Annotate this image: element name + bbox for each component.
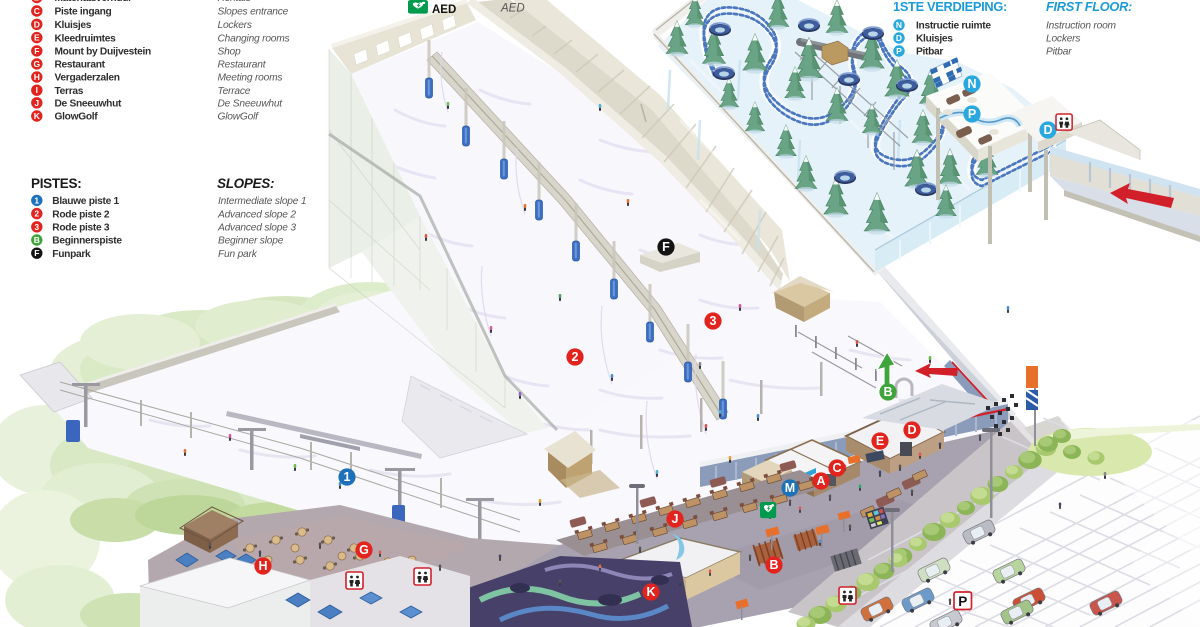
svg-text:Advanced slope 2: Advanced slope 2	[217, 209, 296, 220]
svg-text:Kluisjes: Kluisjes	[916, 34, 953, 45]
svg-text:Advanced slope 3: Advanced slope 3	[217, 223, 296, 234]
svg-text:Rode piste 2: Rode piste 2	[52, 209, 110, 220]
svg-text:Lockers: Lockers	[1046, 34, 1080, 45]
svg-text:E: E	[876, 434, 884, 448]
svg-text:1: 1	[344, 470, 351, 484]
svg-text:I: I	[36, 85, 38, 95]
svg-text:3: 3	[710, 314, 717, 328]
svg-text:Restaurant: Restaurant	[218, 60, 267, 71]
svg-text:P: P	[896, 46, 902, 56]
svg-text:N: N	[896, 20, 902, 30]
svg-text:Instructie ruimte: Instructie ruimte	[916, 21, 991, 32]
svg-text:Vergaderzalen: Vergaderzalen	[55, 73, 120, 84]
svg-text:GlowGolf: GlowGolf	[218, 112, 260, 123]
svg-text:SLOPES:: SLOPES:	[217, 176, 274, 191]
svg-text:F: F	[34, 248, 39, 258]
svg-text:Mount by Duijvestein: Mount by Duijvestein	[55, 47, 152, 58]
svg-text:Meeting rooms: Meeting rooms	[218, 73, 283, 84]
svg-text:Beginnerspiste: Beginnerspiste	[52, 236, 122, 247]
svg-text:E: E	[34, 33, 40, 43]
svg-text:Changing rooms: Changing rooms	[218, 33, 290, 44]
svg-text:H: H	[258, 559, 267, 573]
svg-text:P: P	[968, 107, 976, 121]
svg-text:Instruction room: Instruction room	[1046, 21, 1117, 32]
svg-text:D: D	[907, 423, 916, 437]
svg-text:D: D	[34, 19, 40, 29]
svg-text:Lockers: Lockers	[218, 20, 252, 31]
svg-text:Terras: Terras	[55, 86, 84, 97]
svg-text:PISTES:: PISTES:	[31, 176, 81, 191]
svg-text:B: B	[34, 235, 40, 245]
svg-text:Funpark: Funpark	[52, 249, 91, 260]
svg-text:Intermediate slope 1: Intermediate slope 1	[218, 196, 306, 207]
svg-text:Kluisjes: Kluisjes	[55, 20, 92, 31]
svg-text:D: D	[896, 33, 902, 43]
svg-text:Pitbar: Pitbar	[916, 47, 943, 58]
svg-text:FIRST FLOOR:: FIRST FLOOR:	[1046, 0, 1132, 14]
svg-text:P: P	[958, 594, 967, 609]
svg-text:Restaurant: Restaurant	[55, 60, 106, 71]
svg-text:G: G	[33, 59, 40, 69]
svg-text:B: B	[34, 0, 40, 3]
svg-text:C: C	[832, 461, 841, 475]
svg-text:3: 3	[34, 222, 39, 232]
svg-text:1STE VERDIEPING:: 1STE VERDIEPING:	[893, 0, 1007, 14]
svg-text:Blauwe piste 1: Blauwe piste 1	[52, 196, 119, 207]
svg-text:Kleedruimtes: Kleedruimtes	[55, 33, 117, 44]
svg-text:AED: AED	[432, 4, 456, 16]
svg-text:Beginner slope: Beginner slope	[218, 236, 284, 247]
svg-text:2: 2	[34, 209, 39, 219]
svg-text:F: F	[662, 240, 670, 254]
svg-text:B: B	[883, 385, 892, 399]
svg-text:Slopes entrance: Slopes entrance	[218, 7, 289, 18]
svg-text:GlowGolf: GlowGolf	[55, 112, 99, 123]
svg-text:G: G	[359, 543, 369, 557]
svg-text:D: D	[1043, 123, 1052, 137]
svg-text:1: 1	[34, 195, 39, 205]
svg-text:Fun park: Fun park	[218, 249, 258, 260]
svg-text:B: B	[769, 558, 778, 572]
svg-text:De Sneeuwhut: De Sneeuwhut	[55, 99, 122, 110]
svg-text:K: K	[34, 111, 41, 121]
svg-text:Materiaalverhuur: Materiaalverhuur	[55, 0, 133, 4]
svg-text:J: J	[34, 98, 39, 108]
svg-text:J: J	[672, 512, 679, 526]
svg-text:De Sneeuwhut: De Sneeuwhut	[218, 99, 284, 110]
svg-text:M: M	[785, 481, 795, 495]
svg-text:Piste ingang: Piste ingang	[55, 7, 112, 18]
svg-text:H: H	[34, 72, 40, 82]
svg-text:Rode piste 3: Rode piste 3	[52, 223, 110, 234]
svg-text:F: F	[34, 46, 39, 56]
svg-text:Pitbar: Pitbar	[1046, 47, 1072, 58]
svg-text:AED: AED	[500, 3, 525, 15]
svg-text:N: N	[967, 77, 976, 91]
svg-text:A: A	[816, 474, 825, 488]
svg-text:Shop: Shop	[218, 47, 242, 58]
svg-text:K: K	[646, 585, 655, 599]
svg-text:2: 2	[572, 350, 579, 364]
svg-text:C: C	[34, 6, 40, 16]
svg-text:Rentals: Rentals	[218, 0, 251, 4]
svg-text:Terrace: Terrace	[218, 86, 251, 97]
